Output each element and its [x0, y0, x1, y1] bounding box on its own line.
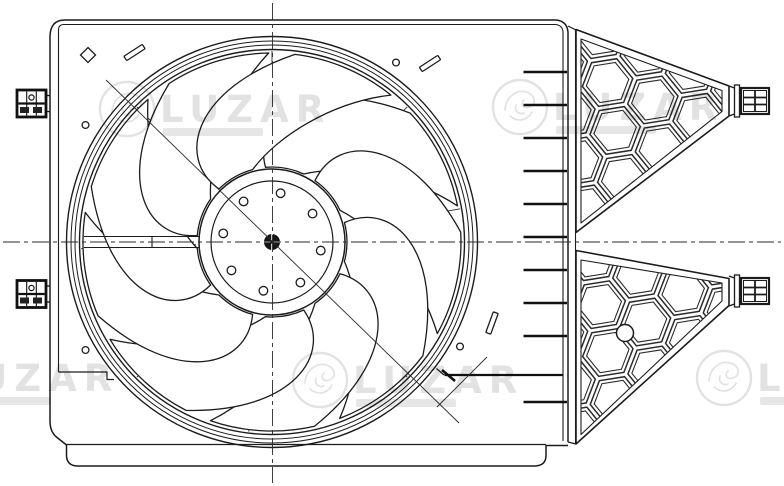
- watermark: LUZAR: [0, 351, 119, 405]
- watermark-tagline-bar: [556, 126, 656, 134]
- mesh-hole: [617, 325, 634, 342]
- hex-cell-inner: [659, 0, 707, 43]
- hex-cell: [602, 471, 659, 486]
- hex-cell: [677, 139, 734, 191]
- hex-cell-inner: [704, 17, 752, 61]
- hex-cell: [564, 0, 621, 13]
- hex-cell: [654, 0, 711, 47]
- hex-cell-inner: [614, 0, 662, 26]
- hex-cell: [692, 0, 749, 17]
- shroud-line: [568, 442, 576, 444]
- hex-cell-inner: [734, 209, 782, 253]
- hex-cell: [647, 218, 704, 270]
- slot-mark: [419, 55, 440, 71]
- bolt-hole: [296, 278, 305, 287]
- hex-cell: [685, 457, 742, 486]
- hex-cell: [526, 0, 583, 43]
- watermark-text: LUZAR: [553, 86, 724, 129]
- hex-cell-inner: [644, 444, 692, 486]
- hex-cell-inner: [682, 413, 730, 457]
- hex-cell-inner: [689, 191, 737, 234]
- hex-cell-inner: [727, 431, 775, 474]
- hex-cell: [602, 200, 659, 252]
- hex-cell: [685, 187, 742, 239]
- hex-cell: [700, 13, 757, 65]
- hex-cell: [557, 453, 614, 486]
- watermark-text: LUZAR: [0, 357, 119, 400]
- hex-cell-inner: [485, 0, 533, 22]
- hex-cell-inner: [599, 427, 647, 471]
- hex-cell-inner: [719, 113, 767, 157]
- hex-cell-inner: [727, 161, 775, 205]
- hex-cell: [594, 423, 651, 475]
- hex-cell: [677, 409, 734, 461]
- shroud-line: [568, 26, 576, 30]
- watermark-text: LUZAR: [353, 359, 524, 402]
- griffin-roundel-icon: [493, 80, 547, 134]
- hex-cell-inner: [606, 205, 654, 248]
- hex-cell: [723, 427, 780, 479]
- hex-cell-inner: [568, 0, 616, 8]
- watermark-text: LUZAR: [160, 88, 331, 131]
- connector-block-right: [729, 85, 769, 117]
- drawing-canvas: LUZARLUZARLUZARLUZARLUZAR: [0, 0, 784, 486]
- hex-cell: [722, 157, 779, 209]
- bolt-hole: [316, 246, 325, 255]
- watermark-text: LUZAR: [757, 357, 784, 400]
- bolt-hole: [308, 209, 317, 218]
- hex-cell: [609, 0, 666, 30]
- connector-block-left: [17, 281, 50, 308]
- hex-cell-inner: [765, 400, 784, 444]
- connector-block-left: [17, 90, 50, 117]
- hex-cell-inner: [765, 400, 784, 444]
- hex-cell-inner: [561, 457, 609, 486]
- hex-cell-inner: [538, 43, 586, 87]
- bolt-hole: [239, 197, 248, 206]
- hex-cell-inner: [606, 205, 654, 248]
- griffin-swirl: [709, 363, 738, 391]
- hex-cell: [488, 22, 545, 74]
- shroud-line: [556, 20, 568, 442]
- hex-cell: [654, 0, 711, 47]
- hex-cell: [730, 205, 784, 257]
- hex-cell-inner: [682, 143, 730, 186]
- hex-cell: [768, 444, 784, 486]
- hex-cell-inner: [644, 174, 692, 218]
- small-hole: [457, 343, 464, 350]
- hex-cell-inner: [629, 348, 677, 391]
- hex-cell-inner: [606, 475, 654, 486]
- hex-cell-inner: [606, 475, 654, 486]
- hex-cell: [602, 200, 659, 252]
- hex-cell-inner: [599, 427, 647, 471]
- hex-cell-inner: [712, 335, 760, 378]
- hex-cell: [700, 13, 757, 65]
- watermark-tagline-bar: [163, 128, 263, 136]
- hex-cell-inner: [712, 335, 760, 378]
- hex-cell-inner: [508, 122, 556, 165]
- hex-cell: [481, 0, 538, 26]
- hex-cell-inner: [651, 222, 699, 266]
- hex-cell: [526, 0, 583, 43]
- hex-cell-inner: [516, 170, 564, 213]
- hex-cell-inner: [538, 43, 586, 87]
- hex-cell-inner: [727, 431, 775, 474]
- slot-mark: [124, 44, 145, 60]
- hex-cell: [640, 440, 697, 486]
- hex-cell-inner: [750, 305, 784, 349]
- hex-cell: [488, 22, 545, 74]
- bolt-hole: [227, 266, 236, 275]
- hex-cell-inner: [696, 0, 744, 13]
- watermark-tagline-bar: [760, 397, 784, 405]
- hex-cell-inner: [629, 348, 677, 391]
- small-hole: [393, 59, 400, 66]
- hex-cell-inner: [644, 444, 692, 486]
- hex-cell-inner: [734, 209, 782, 253]
- hex-cell-inner: [682, 413, 730, 457]
- small-hole: [82, 347, 89, 354]
- hex-cell: [677, 139, 734, 191]
- hex-cell-inner: [637, 396, 685, 439]
- hex-cell: [692, 0, 749, 17]
- hex-cell-inner: [523, 218, 571, 261]
- hex-cell: [723, 427, 780, 479]
- hex-cell-inner: [696, 0, 744, 13]
- hex-cell: [685, 457, 742, 486]
- hex-cell-inner: [689, 461, 737, 486]
- hex-cell: [564, 0, 621, 13]
- hex-cell: [640, 440, 697, 486]
- hex-cell-inner: [750, 305, 784, 349]
- fan-assembly-drawing: LUZARLUZARLUZARLUZARLUZAR: [0, 0, 784, 486]
- hex-cell: [632, 392, 689, 444]
- hex-cell-inner: [516, 170, 564, 213]
- hex-cell: [609, 0, 666, 30]
- hex-cell-inner: [689, 461, 737, 486]
- hex-cell: [511, 166, 568, 218]
- hex-cell: [685, 187, 742, 239]
- diamond-mark: [81, 48, 96, 63]
- watermark: LUZAR: [493, 80, 724, 134]
- hex-cell-inner: [727, 161, 775, 205]
- bolt-hole: [219, 229, 228, 238]
- connector-block-right: [729, 275, 769, 307]
- shroud-line: [67, 445, 569, 466]
- hex-cell-inner: [704, 17, 752, 61]
- hex-cell: [557, 453, 614, 486]
- hex-cell-inner: [644, 174, 692, 218]
- hex-cell-inner: [637, 396, 685, 439]
- slot-mark: [486, 312, 498, 334]
- hex-cell-inner: [772, 448, 784, 486]
- bolt-hole: [259, 286, 268, 295]
- hex-cell-inner: [561, 457, 609, 486]
- hex-cell-inner: [682, 143, 730, 186]
- hex-cell: [481, 0, 538, 26]
- hex-cell-inner: [772, 448, 784, 486]
- hex-cell: [594, 423, 651, 475]
- hex-cell-inner: [508, 122, 556, 165]
- watermark-tagline-bar: [0, 397, 51, 405]
- hex-cell: [722, 157, 779, 209]
- hex-cell: [511, 166, 568, 218]
- hex-cell-inner: [719, 113, 767, 157]
- griffin-roundel-icon: [697, 351, 751, 405]
- hex-cell: [745, 301, 784, 353]
- hex-cell-inner: [659, 0, 707, 43]
- hex-cell-inner: [493, 26, 541, 69]
- hex-cell-inner: [523, 218, 571, 261]
- hex-cell: [730, 205, 784, 257]
- core-ruling-lines: [445, 72, 568, 402]
- hex-cell: [647, 218, 704, 270]
- hex-cell-inner: [614, 0, 662, 26]
- hex-cell-inner: [651, 222, 699, 266]
- hex-cell: [768, 444, 784, 486]
- hex-cell-inner: [568, 0, 616, 8]
- hex-cell: [602, 471, 659, 486]
- watermark: LUZAR: [697, 351, 784, 405]
- hex-cell-inner: [493, 26, 541, 69]
- small-hole: [82, 122, 89, 129]
- watermark-tagline-bar: [356, 399, 456, 407]
- hex-cell-inner: [485, 0, 533, 22]
- hex-cell: [745, 301, 784, 353]
- bolt-hole: [276, 189, 285, 198]
- hex-cell: [632, 392, 689, 444]
- hex-cell: [677, 409, 734, 461]
- hex-cell-inner: [689, 191, 737, 234]
